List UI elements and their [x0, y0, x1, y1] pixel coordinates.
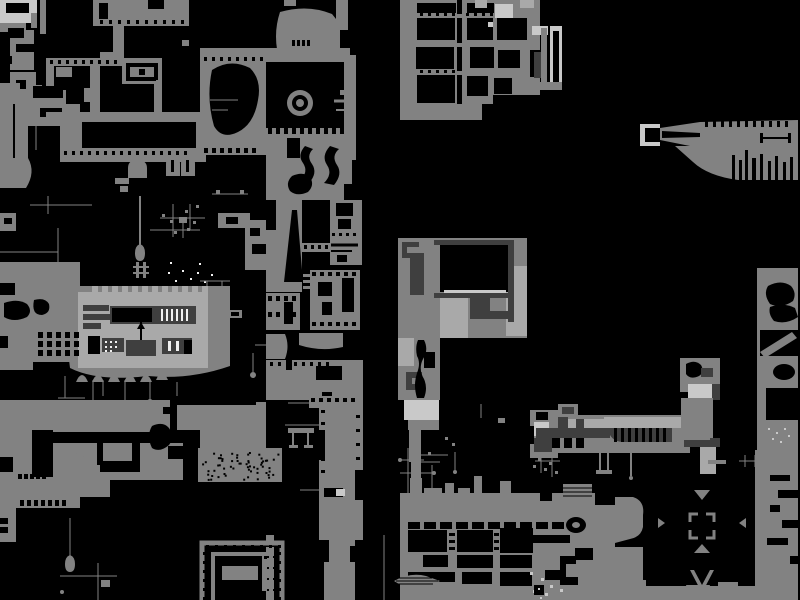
cutout — [342, 278, 354, 312]
tick-row — [55, 500, 59, 506]
terrain — [77, 480, 110, 497]
speckles — [220, 457, 222, 459]
grid-blocks — [74, 332, 79, 338]
speckles — [220, 454, 222, 456]
bunker-dark — [712, 384, 720, 400]
tick-row — [449, 533, 455, 536]
node — [398, 458, 402, 462]
vent — [136, 262, 139, 278]
speckles — [257, 468, 259, 470]
block — [500, 555, 532, 568]
tick-row — [332, 128, 336, 134]
maze-core — [222, 566, 258, 580]
speckles — [231, 460, 233, 462]
node — [445, 437, 448, 440]
tick-row — [340, 128, 344, 134]
terrain — [84, 88, 92, 102]
notch-light — [336, 489, 345, 496]
speckles — [213, 453, 215, 455]
tick-row — [34, 500, 38, 506]
tick-row — [321, 410, 325, 413]
tick-row — [785, 121, 788, 127]
tick-row — [27, 500, 31, 506]
speckles — [231, 453, 233, 455]
arch-slit — [171, 160, 174, 172]
tick-row — [204, 57, 207, 61]
tower-dark — [534, 52, 541, 78]
tick-row — [302, 362, 305, 366]
tick-row — [163, 20, 166, 24]
tick-row — [240, 556, 243, 559]
compass-gap — [712, 522, 717, 530]
compass-gap — [687, 522, 692, 530]
tick-row — [721, 121, 724, 127]
island — [76, 451, 84, 459]
light-patch — [495, 4, 513, 18]
node — [708, 460, 726, 464]
cutout — [790, 556, 798, 564]
light-dots — [541, 578, 544, 581]
plateau — [78, 292, 208, 368]
speckles — [211, 475, 213, 477]
block — [416, 47, 454, 69]
tick-row — [212, 57, 215, 61]
spike — [739, 160, 742, 180]
cutout — [532, 535, 570, 543]
factory-slot — [176, 341, 179, 351]
tick-row — [120, 151, 123, 155]
tick-row — [326, 362, 329, 366]
cutout — [318, 282, 332, 296]
block — [457, 555, 493, 568]
tick-row — [308, 128, 312, 134]
factory-dots — [105, 341, 107, 343]
complex-bar — [410, 253, 424, 295]
tick-row — [102, 286, 108, 292]
tick-row — [310, 362, 313, 366]
block — [500, 528, 533, 553]
tick-row — [212, 148, 216, 153]
cutout — [148, 0, 164, 9]
block — [500, 572, 532, 586]
grid-blocks — [56, 332, 61, 338]
ship-bracket-hole — [645, 128, 660, 142]
viaduct-teeth — [576, 438, 584, 448]
tick-row — [737, 121, 740, 127]
avenue-gaps — [532, 522, 536, 529]
terrain — [120, 186, 128, 192]
speckles — [269, 467, 271, 469]
terrain — [100, 52, 114, 60]
tick-row — [705, 121, 708, 127]
complex-edge — [434, 293, 510, 298]
grid-blocks — [38, 341, 43, 347]
star-dots — [197, 272, 199, 274]
tick-row — [162, 286, 168, 292]
tick-row — [104, 151, 107, 155]
tick-row — [228, 57, 231, 61]
viaduct-slits — [628, 428, 631, 442]
tick-row — [324, 128, 328, 134]
cutout — [319, 540, 329, 562]
speckles — [219, 464, 221, 466]
city — [400, 104, 482, 120]
node — [179, 217, 187, 223]
ledge-strip — [404, 400, 439, 420]
tick-row — [142, 286, 148, 292]
cutout — [284, 302, 293, 324]
tick-row — [276, 312, 280, 317]
tick-row — [82, 60, 85, 64]
tick-row — [168, 151, 171, 155]
tick-row — [264, 556, 267, 559]
factory-block — [88, 336, 100, 354]
grid-blocks — [74, 350, 79, 356]
node — [60, 590, 64, 594]
tick-row — [203, 579, 206, 582]
city-bump — [474, 476, 482, 494]
tick-row — [18, 474, 22, 479]
dark-hall — [82, 122, 196, 148]
tick-row — [109, 20, 112, 24]
bunker-dark — [701, 368, 713, 377]
light-dots — [545, 594, 547, 596]
ledge-strip — [408, 420, 439, 430]
tick-row — [769, 121, 772, 127]
tick-row — [184, 151, 187, 155]
speckles — [210, 479, 212, 481]
shore-bump — [622, 580, 646, 586]
tick-row — [224, 545, 227, 548]
star-dots — [190, 278, 192, 280]
tick-row — [449, 540, 455, 543]
cutout — [33, 86, 63, 98]
city-bump — [445, 483, 454, 494]
cutout — [350, 546, 363, 562]
check — [558, 417, 568, 428]
avenue-gaps — [516, 522, 520, 529]
node — [170, 220, 173, 223]
speckles — [222, 458, 224, 460]
speckles — [247, 454, 249, 456]
star-dots — [182, 270, 184, 272]
tick-row — [745, 121, 748, 127]
tick-row — [100, 20, 103, 24]
viaduct-mid — [536, 428, 610, 438]
speckles — [236, 457, 238, 459]
tick-row — [192, 286, 198, 292]
tick-row — [215, 545, 218, 548]
cutout — [322, 302, 332, 315]
speckles — [257, 478, 259, 480]
node — [185, 210, 188, 213]
tick-row — [268, 128, 272, 134]
tick-row — [713, 121, 716, 127]
speckles — [248, 469, 250, 471]
node — [193, 221, 196, 224]
cutout — [16, 44, 34, 52]
tick-row — [343, 398, 347, 402]
tick-row — [325, 245, 328, 249]
terrain — [266, 334, 288, 359]
grid-blocks — [74, 341, 79, 347]
city-bump — [500, 481, 511, 494]
speckles — [261, 458, 263, 460]
avenue-gaps — [548, 522, 552, 529]
tick-row — [320, 322, 324, 326]
node — [549, 462, 552, 465]
tick-row — [307, 40, 310, 46]
speckles — [261, 462, 263, 464]
avenue-gaps — [484, 522, 488, 529]
speckles — [268, 477, 270, 479]
bridge — [457, 71, 462, 75]
tick-row — [353, 233, 356, 236]
tick-row — [96, 151, 99, 155]
tick-row — [144, 151, 147, 155]
tick-row — [172, 20, 175, 24]
tick-row — [270, 362, 273, 366]
bridge — [457, 43, 462, 47]
node — [216, 190, 220, 194]
terrain — [299, 333, 343, 349]
tick-row — [203, 588, 206, 591]
light-dots — [560, 589, 563, 592]
cutout — [545, 570, 561, 580]
tick-row — [24, 474, 28, 479]
factory-stripe — [83, 323, 101, 329]
tick-row — [74, 60, 77, 64]
tick-row — [64, 151, 67, 155]
structure — [6, 3, 29, 13]
complex-ledge — [444, 290, 506, 293]
compass-gap — [698, 512, 706, 518]
star-dots — [211, 274, 213, 276]
cutout — [770, 505, 780, 512]
tick-row — [220, 57, 223, 61]
arch — [128, 160, 147, 178]
pad-core — [139, 69, 145, 75]
light-dots — [784, 428, 786, 430]
grid-blocks — [47, 350, 52, 356]
tick-row — [474, 13, 477, 16]
speckles — [248, 462, 250, 464]
tick-row — [729, 121, 732, 127]
tick-row — [436, 13, 439, 16]
tick-row — [344, 322, 348, 326]
dark — [534, 438, 552, 452]
tick-row — [335, 398, 339, 402]
tick-row — [242, 545, 245, 548]
factory-dots — [105, 346, 107, 348]
grid-blocks — [38, 332, 43, 338]
tick-row — [248, 556, 251, 559]
tick-row — [336, 322, 340, 326]
tick-row — [48, 500, 52, 506]
tick-row — [321, 458, 325, 461]
tick-row — [428, 70, 431, 73]
terrain — [336, 0, 348, 30]
tick-row — [92, 286, 98, 292]
tick-row — [80, 151, 83, 155]
cave — [766, 283, 795, 306]
tick-row — [452, 13, 455, 16]
tick-row — [72, 151, 75, 155]
spike — [783, 162, 786, 180]
spike — [790, 157, 793, 180]
speckles — [262, 466, 264, 468]
tick-row — [311, 245, 314, 249]
tick-row — [152, 286, 158, 292]
tick-row — [160, 151, 163, 155]
speckles — [268, 474, 270, 476]
block — [417, 18, 455, 40]
tick-row — [321, 422, 325, 425]
tick-row — [50, 60, 53, 64]
complex-edge — [434, 240, 514, 245]
complex-edge — [508, 240, 514, 322]
speckles — [249, 465, 251, 467]
light-patch — [488, 22, 493, 27]
node — [452, 443, 455, 446]
tick-row — [136, 151, 139, 155]
tick-row — [112, 151, 115, 155]
dark — [562, 407, 574, 414]
river — [50, 432, 102, 443]
speckles — [236, 454, 238, 456]
tick-row — [268, 312, 272, 317]
tick-row — [106, 60, 109, 64]
factory-slot — [168, 341, 171, 351]
terrain — [182, 40, 189, 46]
block — [470, 47, 494, 68]
terrain — [0, 508, 16, 542]
node — [538, 458, 541, 461]
factory-slots — [171, 309, 173, 321]
tick-row — [232, 556, 235, 559]
speckles — [224, 473, 226, 475]
factory-slots — [161, 309, 163, 321]
tick-row — [36, 474, 40, 479]
tick-row — [316, 128, 320, 134]
river — [32, 430, 53, 477]
tick-row — [494, 540, 499, 543]
tick-row — [88, 151, 91, 155]
block — [457, 530, 493, 552]
speckles — [205, 461, 207, 463]
machine-core — [337, 255, 347, 262]
tick-row — [154, 20, 157, 24]
river — [132, 434, 140, 472]
speckles — [221, 460, 223, 462]
tick-row — [304, 245, 307, 249]
tick-row — [428, 13, 431, 16]
tick-row — [244, 148, 248, 153]
factory-dots — [115, 346, 117, 348]
cutout — [595, 493, 615, 505]
avenue-gaps — [436, 522, 440, 529]
grid-blocks — [56, 350, 61, 356]
viaduct-slits — [649, 428, 652, 442]
city-bump — [458, 488, 470, 494]
tick-row — [319, 398, 323, 402]
tick-row — [332, 233, 335, 236]
tick-row — [490, 13, 493, 16]
speckles — [250, 470, 252, 472]
post-base — [596, 470, 612, 474]
tick-row — [292, 40, 295, 46]
node — [101, 580, 110, 587]
tick-row — [318, 362, 321, 366]
light-dots — [550, 585, 553, 588]
speckles — [208, 470, 210, 472]
speckles — [230, 466, 232, 468]
tick-row — [251, 545, 254, 548]
terrain — [31, 13, 37, 28]
pad-knobs — [122, 59, 126, 63]
tick-row — [292, 296, 296, 301]
pad-knobs — [122, 80, 126, 84]
city-bump — [424, 488, 442, 494]
tick-row — [236, 148, 240, 153]
cave — [288, 174, 312, 195]
tick-row — [276, 296, 280, 301]
node — [533, 465, 536, 468]
factory-bar — [102, 338, 124, 352]
cutout — [8, 28, 24, 38]
tick-row — [352, 272, 356, 276]
node — [544, 468, 547, 471]
grid-blocks — [38, 350, 43, 356]
tick-row — [278, 579, 281, 582]
tick-row — [122, 286, 128, 292]
cave — [287, 138, 300, 158]
block — [417, 3, 456, 13]
viaduct-teeth — [552, 438, 560, 448]
terrain — [115, 178, 129, 184]
speckles — [257, 472, 259, 474]
speckles — [265, 460, 267, 462]
tick-row — [321, 470, 325, 473]
tick-row — [328, 322, 332, 326]
cave-big — [766, 388, 798, 420]
tick-row — [90, 60, 93, 64]
tick-row — [339, 233, 342, 236]
tick-row — [466, 13, 469, 16]
speckles — [269, 471, 271, 473]
tick-row — [20, 500, 24, 506]
speckles — [213, 470, 215, 472]
tick-row — [292, 128, 296, 134]
factory-dots — [110, 350, 112, 352]
tick-row — [278, 362, 281, 366]
tick-row — [420, 70, 423, 73]
tick-row — [352, 322, 356, 326]
spike — [768, 161, 771, 180]
avenue-gaps — [420, 522, 424, 529]
block — [467, 18, 493, 40]
speckles — [247, 466, 249, 468]
notch — [163, 407, 177, 414]
node — [196, 205, 199, 208]
block — [498, 50, 520, 68]
dark — [710, 438, 720, 447]
cutout — [530, 426, 534, 444]
speckles — [273, 459, 275, 461]
node — [432, 471, 436, 475]
light-patch — [398, 338, 414, 366]
cutout — [0, 56, 12, 64]
